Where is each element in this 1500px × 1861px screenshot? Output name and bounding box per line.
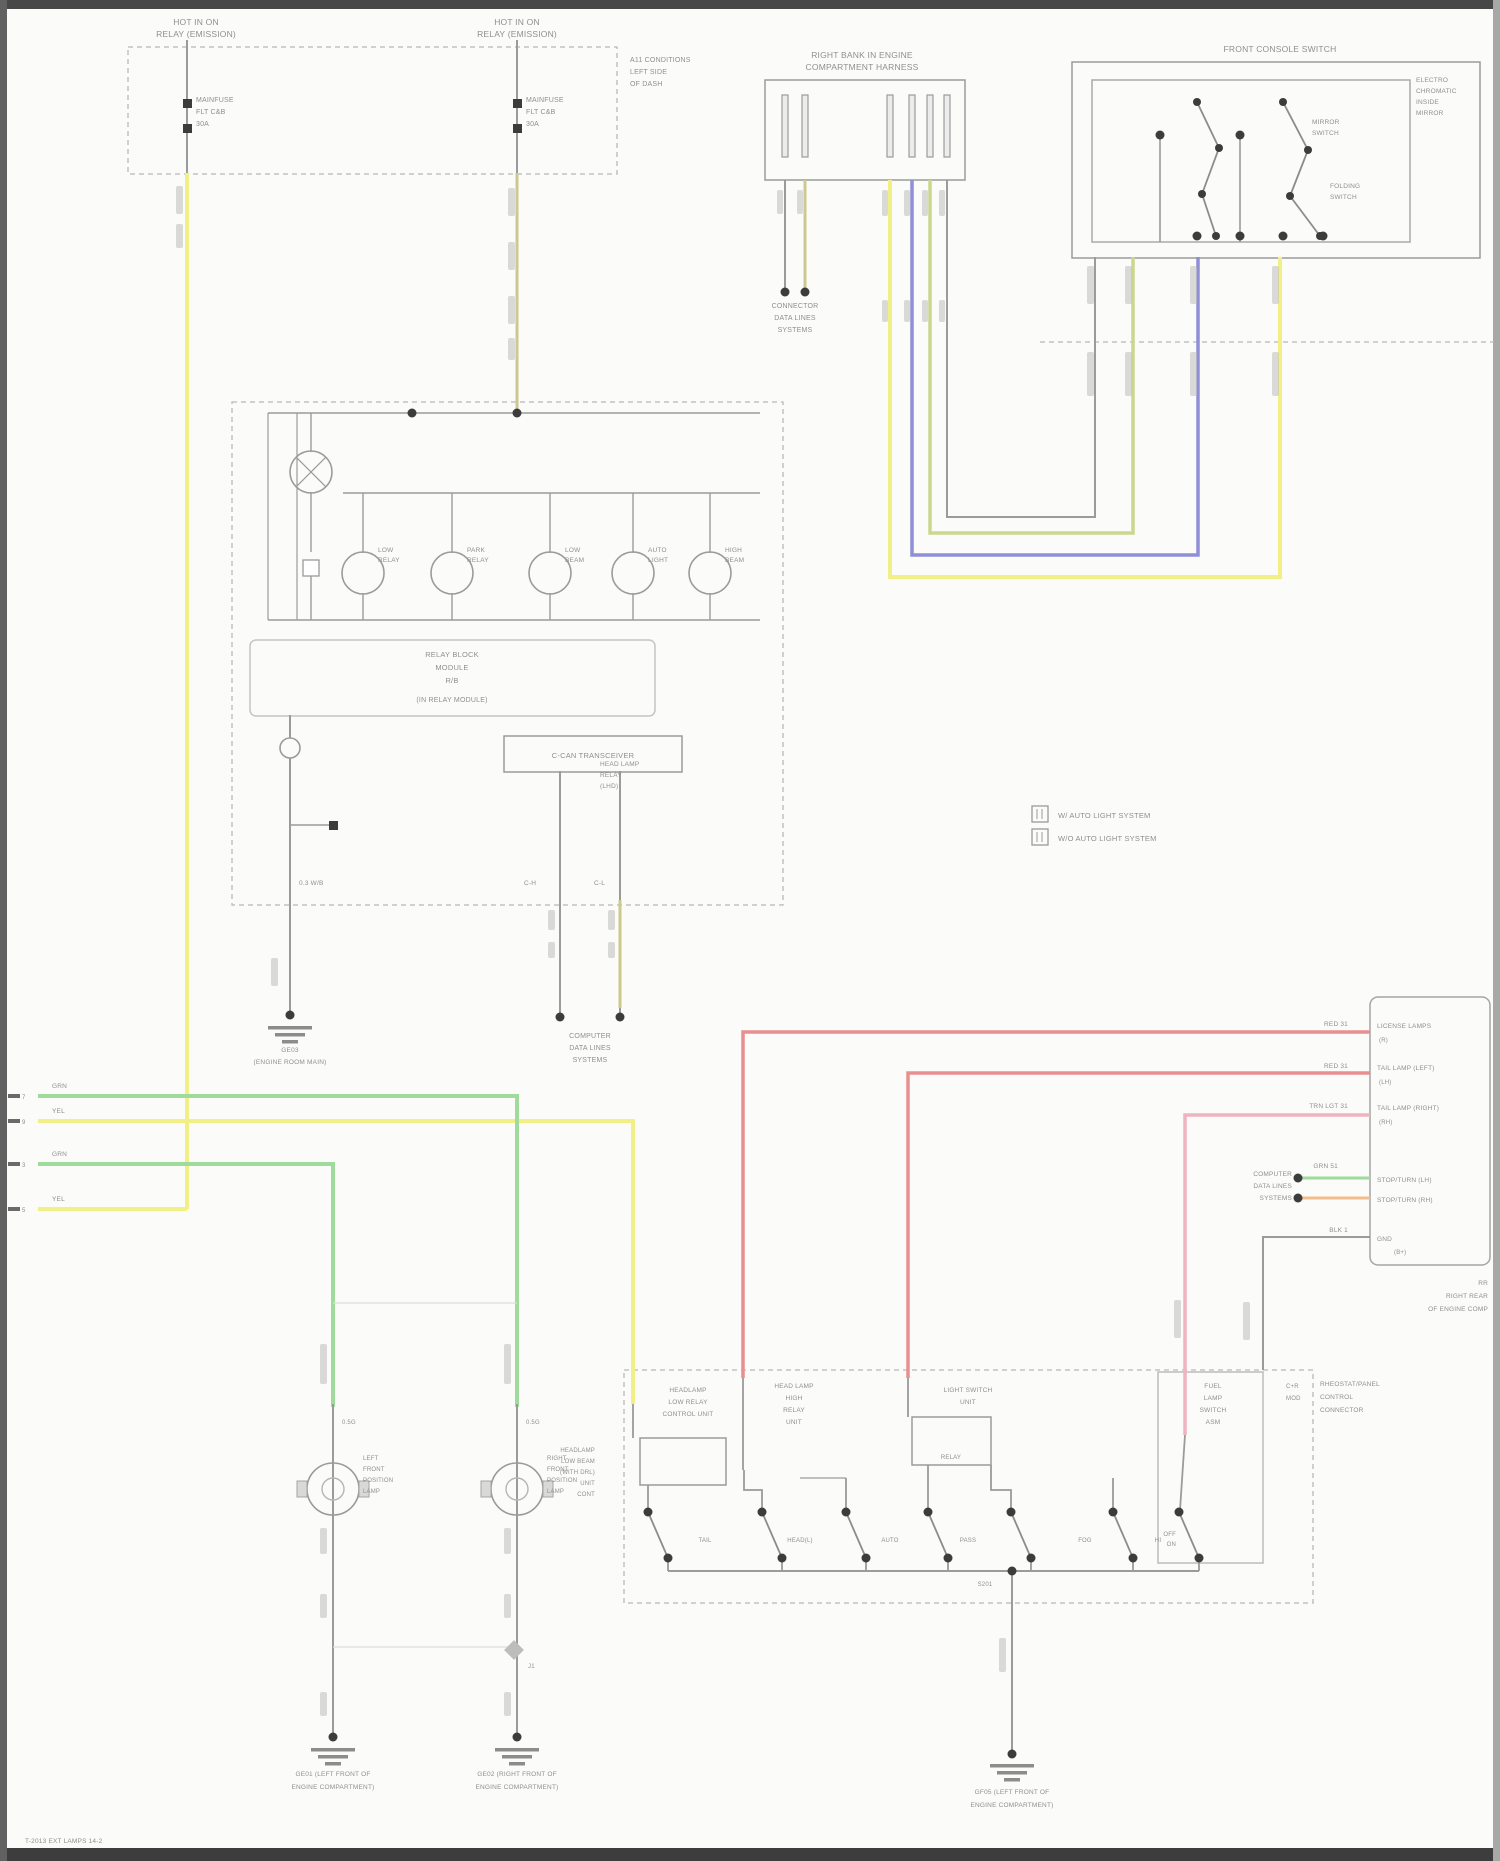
inline-connector bbox=[1125, 352, 1132, 396]
diagram-label: FUEL bbox=[1204, 1383, 1222, 1390]
switch-contact-dot bbox=[1198, 190, 1206, 198]
ground-symbol-bar bbox=[275, 1033, 305, 1037]
inline-connector bbox=[1087, 266, 1094, 304]
junction-dot bbox=[1236, 232, 1245, 241]
diagram-label: ELECTRO bbox=[1416, 77, 1448, 84]
diagram-label: HIGH bbox=[785, 1395, 802, 1402]
wire-green2 bbox=[930, 180, 1133, 533]
wire-red bbox=[743, 1032, 1370, 1378]
inline-connector bbox=[504, 1528, 511, 1554]
diagram-label: FRONT bbox=[363, 1467, 385, 1473]
switch-contact-dot bbox=[644, 1508, 653, 1517]
junction-dot bbox=[513, 1733, 522, 1742]
diagram-label: COMPUTER bbox=[569, 1033, 611, 1040]
lamp-tab bbox=[481, 1481, 491, 1497]
diagram-label: COMPARTMENT HARNESS bbox=[806, 62, 919, 72]
diagram-label: AUTO bbox=[648, 547, 667, 554]
diagram-label: RELAY bbox=[783, 1407, 805, 1414]
diagram-label: LOW RELAY bbox=[668, 1399, 708, 1406]
wire-gray bbox=[1180, 1435, 1185, 1510]
junction-dot bbox=[513, 409, 522, 418]
inline-connector bbox=[1190, 266, 1197, 304]
connector-pin bbox=[782, 95, 788, 157]
inline-connector bbox=[320, 1528, 327, 1554]
diagram-label: C-CAN TRANSCEIVER bbox=[552, 751, 635, 760]
diagram-label: (RH) bbox=[1379, 1120, 1392, 1126]
diagram-label: RR bbox=[1478, 1280, 1488, 1287]
switch-contact-dot bbox=[1109, 1508, 1118, 1517]
junction-dot bbox=[556, 1013, 565, 1022]
junction-dot bbox=[1236, 131, 1245, 140]
page-edge-bottom bbox=[0, 1848, 1500, 1861]
wire-gray bbox=[991, 1465, 1011, 1510]
junction-dot bbox=[1319, 232, 1328, 241]
diagram-label: OF ENGINE COMP bbox=[1428, 1306, 1488, 1313]
diagram-label: LAMP bbox=[1204, 1395, 1223, 1402]
wire-gray bbox=[744, 1470, 762, 1510]
diagram-label: HOT IN ON bbox=[173, 17, 219, 27]
inline-connector bbox=[999, 1638, 1006, 1672]
diagram-label: C-L bbox=[594, 880, 605, 887]
relay-module-block bbox=[232, 402, 783, 905]
diagram-label: COMPUTER bbox=[1253, 1171, 1292, 1178]
diagram-label: FOG bbox=[1078, 1538, 1092, 1544]
inline-connector bbox=[176, 186, 183, 214]
inline-connector bbox=[608, 942, 615, 958]
diagram-label: W/O AUTO LIGHT SYSTEM bbox=[1058, 834, 1157, 843]
diagram-label: RED 31 bbox=[1324, 1021, 1348, 1028]
diagram-label: YEL bbox=[52, 1196, 65, 1203]
diagram-label: GRN bbox=[52, 1151, 67, 1158]
splice-diamond bbox=[504, 1640, 524, 1660]
inline-connector bbox=[504, 1594, 511, 1618]
diagram-label: (IN RELAY MODULE) bbox=[416, 697, 487, 704]
inline-connector bbox=[882, 300, 888, 322]
legend-icon bbox=[1032, 806, 1048, 822]
diagram-label: (LH) bbox=[1379, 1080, 1391, 1086]
diagram-label: CONNECTOR bbox=[772, 303, 819, 310]
diagram-label: SYSTEMS bbox=[1260, 1195, 1293, 1202]
switch-contact-dot bbox=[924, 1508, 933, 1517]
diagram-label: BLK 1 bbox=[1329, 1227, 1348, 1234]
inline-connector bbox=[1087, 352, 1094, 396]
terminal-square bbox=[183, 124, 192, 133]
diagram-label: GE01 (LEFT FRONT OF bbox=[295, 1771, 370, 1778]
inline-connector bbox=[504, 1344, 511, 1384]
diagram-label: FRONT CONSOLE SWITCH bbox=[1224, 44, 1337, 54]
diagram-label: OF DASH bbox=[630, 81, 663, 88]
diagram-label: ENGINE COMPARTMENT) bbox=[970, 1802, 1053, 1809]
diagram-label: SWITCH bbox=[1312, 130, 1339, 137]
diagram-label: POSITION bbox=[547, 1478, 577, 1484]
diagram-label: PARK bbox=[467, 547, 485, 554]
inline-connector bbox=[504, 1692, 511, 1716]
switch-blade bbox=[1179, 1512, 1199, 1558]
connector-pin bbox=[887, 95, 893, 157]
switch-contact-dot bbox=[1215, 144, 1223, 152]
junction-dot bbox=[616, 1013, 625, 1022]
wire-red bbox=[908, 1073, 1370, 1378]
diagram-label: 30A bbox=[196, 121, 209, 128]
diagram-label: GF05 (LEFT FRONT OF bbox=[975, 1789, 1050, 1796]
diagram-label: SWITCH bbox=[1330, 194, 1357, 201]
inline-connector bbox=[320, 1692, 327, 1716]
ground-symbol-bar bbox=[325, 1762, 341, 1766]
terminal-square bbox=[183, 99, 192, 108]
page-edge-tick bbox=[8, 1094, 20, 1098]
diagram-label: LEFT SIDE bbox=[630, 69, 667, 76]
switch-contact-dot bbox=[1175, 1508, 1184, 1517]
inline-connector bbox=[939, 190, 945, 216]
ground-symbol-bar bbox=[311, 1748, 355, 1752]
switch-contact-dot bbox=[1286, 192, 1294, 200]
inline-connector bbox=[882, 190, 888, 216]
diagram-label: HEAD(L) bbox=[787, 1538, 812, 1544]
diagram-label: RIGHT bbox=[547, 1456, 567, 1462]
switch-contact-dot bbox=[944, 1554, 953, 1563]
diagram-label: RELAY bbox=[600, 772, 622, 779]
diagram-label: LEFT bbox=[363, 1456, 379, 1462]
diagram-label: UNIT bbox=[580, 1481, 595, 1487]
page-edge-tick bbox=[8, 1207, 20, 1211]
diagram-label: FOLDING bbox=[1330, 183, 1360, 190]
diagram-label: RELAY bbox=[378, 557, 400, 564]
inline-connector bbox=[508, 242, 515, 270]
switch-contact-dot bbox=[778, 1554, 787, 1563]
switch-contact-dot bbox=[664, 1554, 673, 1563]
diagram-label: LAMP bbox=[547, 1489, 564, 1495]
diagram-label: HI bbox=[1155, 1538, 1162, 1544]
diagram-label: LIGHT SWITCH bbox=[944, 1387, 993, 1394]
engine-harness-connector-box bbox=[765, 80, 965, 180]
connector-pin bbox=[927, 95, 933, 157]
diagram-label: 0.5G bbox=[342, 1420, 356, 1426]
diagram-label: GND bbox=[1377, 1236, 1392, 1243]
diagram-label: UNIT bbox=[786, 1419, 802, 1426]
diagram-label: C+R bbox=[1286, 1384, 1299, 1390]
switch-contact-dot bbox=[1007, 1508, 1016, 1517]
junction-dot bbox=[781, 288, 790, 297]
switch-blade bbox=[648, 1512, 668, 1558]
diagram-label: MIRROR bbox=[1416, 110, 1444, 117]
inline-connector bbox=[548, 942, 555, 958]
diagram-label: MIRROR bbox=[1312, 119, 1340, 126]
diagram-label: CONTROL UNIT bbox=[663, 1411, 714, 1418]
diagram-label: SYSTEMS bbox=[778, 327, 813, 334]
inline-connector bbox=[508, 188, 515, 216]
diagram-label: SYSTEMS bbox=[573, 1057, 608, 1064]
switch-contact-dot bbox=[1193, 98, 1201, 106]
diagram-label: HIGH bbox=[725, 547, 742, 554]
inline-connector bbox=[904, 300, 910, 322]
diagram-label: ON bbox=[1167, 1542, 1176, 1548]
switch-chain bbox=[1197, 102, 1219, 236]
junction-dot bbox=[1156, 131, 1165, 140]
switch-contact-dot bbox=[1027, 1554, 1036, 1563]
diagram-label: LOW bbox=[565, 547, 581, 554]
page-edge-tick bbox=[8, 1119, 20, 1123]
diagram-label: HEAD LAMP bbox=[600, 761, 639, 768]
wiring-diagram: HOT IN ONRELAY (EMISSION)HOT IN ONRELAY … bbox=[0, 0, 1500, 1861]
junction-dot bbox=[408, 409, 417, 418]
console-switch-inner-box bbox=[1092, 80, 1410, 242]
diagram-label: GRN bbox=[52, 1083, 67, 1090]
diagram-label: DATA LINES bbox=[569, 1045, 611, 1052]
inline-connector bbox=[939, 300, 945, 322]
diagram-label: STOP/TURN (RH) bbox=[1377, 1197, 1433, 1204]
diagram-label: 3 bbox=[22, 1163, 26, 1169]
diagram-label: ENGINE COMPARTMENT) bbox=[291, 1784, 374, 1791]
diagram-label: 0.3 W/B bbox=[299, 880, 324, 887]
diagram-label: YEL bbox=[52, 1108, 65, 1115]
junction-box bbox=[303, 560, 319, 576]
diagram-label: SWITCH bbox=[1200, 1407, 1227, 1414]
diagram-label: UNIT bbox=[960, 1399, 976, 1406]
diagram-label: BEAM bbox=[725, 557, 744, 564]
diagram-label: A11 CONDITIONS bbox=[630, 57, 691, 64]
diagram-label: 5 bbox=[22, 1208, 26, 1214]
switch-blade bbox=[1113, 1512, 1133, 1558]
terminal-square bbox=[513, 99, 522, 108]
legend-icon bbox=[1032, 829, 1048, 845]
page-edge-right bbox=[1493, 0, 1500, 1861]
page-edge-left bbox=[0, 0, 7, 1861]
ground-symbol-bar bbox=[1004, 1778, 1020, 1782]
diagram-label: DATA LINES bbox=[1253, 1183, 1292, 1190]
diagram-label: RIGHT REAR bbox=[1446, 1293, 1488, 1300]
connector-pin bbox=[944, 95, 950, 157]
diagram-label: RHEOSTAT/PANEL bbox=[1320, 1381, 1380, 1388]
inline-connector bbox=[271, 958, 278, 986]
switch-contact-dot bbox=[862, 1554, 871, 1563]
inline-connector bbox=[1190, 352, 1197, 396]
diagram-label: RED 31 bbox=[1324, 1063, 1348, 1070]
diagram-label: HOT IN ON bbox=[494, 17, 540, 27]
wiring-diagram-page: HOT IN ONRELAY (EMISSION)HOT IN ONRELAY … bbox=[0, 0, 1500, 1861]
inline-connector bbox=[1243, 1302, 1250, 1340]
diagram-label: S201 bbox=[978, 1582, 993, 1588]
diagram-label: MAINFUSE bbox=[526, 97, 564, 104]
switch-contact-dot bbox=[1212, 232, 1220, 240]
diagram-label: (B+) bbox=[1394, 1250, 1406, 1256]
diagram-label: (R) bbox=[1379, 1038, 1388, 1044]
diagram-label: (ENGINE ROOM MAIN) bbox=[254, 1059, 327, 1066]
diagram-label: 0.5G bbox=[526, 1420, 540, 1426]
inline-connector bbox=[1125, 266, 1132, 304]
diagram-label: ENGINE COMPARTMENT) bbox=[475, 1784, 558, 1791]
diagram-label: W/ AUTO LIGHT SYSTEM bbox=[1058, 811, 1151, 820]
diagram-label: TAIL bbox=[698, 1538, 711, 1544]
low-relay-inner-box bbox=[640, 1438, 726, 1485]
diagram-label: RELAY (EMISSION) bbox=[477, 29, 557, 39]
diagram-label: (LHD) bbox=[600, 783, 618, 790]
diagram-label: RELAY bbox=[467, 557, 489, 564]
inline-connector bbox=[1174, 1300, 1181, 1338]
diagram-label: GE02 (RIGHT FRONT OF bbox=[477, 1771, 557, 1778]
diagram-label: HEADLAMP bbox=[669, 1387, 706, 1394]
switch-contact-dot bbox=[1304, 146, 1312, 154]
diagram-label: HEADLAMP bbox=[560, 1448, 595, 1454]
inline-connector bbox=[320, 1344, 327, 1384]
switch-blade bbox=[928, 1512, 948, 1558]
diagram-label: 7 bbox=[22, 1095, 26, 1101]
diagram-label: OFF bbox=[1163, 1532, 1176, 1538]
diagram-label: PASS bbox=[960, 1538, 976, 1544]
diagram-label: TAIL LAMP (RIGHT) bbox=[1377, 1105, 1439, 1112]
switch-contact-dot bbox=[842, 1508, 851, 1517]
switch-contact-dot bbox=[1195, 1554, 1204, 1563]
inline-connector bbox=[508, 296, 515, 324]
diagram-label: R/B bbox=[445, 676, 458, 685]
diagram-label: AUTO bbox=[881, 1538, 898, 1544]
inline-connector bbox=[777, 190, 783, 214]
diagram-label: J1 bbox=[528, 1664, 535, 1670]
diagram-label: CONT bbox=[577, 1492, 595, 1498]
page-edge-tick bbox=[8, 1162, 20, 1166]
junction-dot bbox=[1008, 1750, 1017, 1759]
wire-gray bbox=[947, 180, 1095, 517]
switch-contact-dot bbox=[1279, 98, 1287, 106]
junction-dot bbox=[1294, 1174, 1303, 1183]
inline-connector bbox=[508, 338, 515, 360]
switch-contact-dot bbox=[758, 1508, 767, 1517]
ground-symbol-bar bbox=[990, 1764, 1034, 1768]
diagram-label: CONTROL bbox=[1320, 1394, 1353, 1401]
diagram-label: LICENSE LAMPS bbox=[1377, 1023, 1432, 1030]
diagram-label: DATA LINES bbox=[774, 315, 816, 322]
ring-terminal bbox=[280, 738, 300, 758]
diagram-label: LIGHT bbox=[648, 557, 668, 564]
wire-blue bbox=[912, 180, 1198, 555]
diagram-label: T-2013 EXT LAMPS 14-2 bbox=[25, 1838, 103, 1845]
diagram-label: CHROMATIC bbox=[1416, 88, 1457, 95]
inline-connector bbox=[922, 300, 928, 322]
switch-blade bbox=[1011, 1512, 1031, 1558]
ground-symbol-bar bbox=[495, 1748, 539, 1752]
wire-gray bbox=[1263, 1237, 1370, 1370]
diagram-label: 30A bbox=[526, 121, 539, 128]
diagram-label: MAINFUSE bbox=[196, 97, 234, 104]
diagram-label: FLT C&B bbox=[196, 109, 226, 116]
lamp-tab bbox=[297, 1481, 307, 1497]
junction-dot bbox=[1193, 232, 1202, 241]
diagram-label: STOP/TURN (LH) bbox=[1377, 1177, 1432, 1184]
diagram-label: GRN 51 bbox=[1313, 1163, 1338, 1170]
diagram-label: HEAD LAMP bbox=[774, 1383, 813, 1390]
diagram-label: GE03 bbox=[281, 1047, 299, 1054]
diagram-label: CONNECTOR bbox=[1320, 1407, 1364, 1414]
diagram-label: FRONT bbox=[547, 1467, 569, 1473]
diagram-label: RELAY (EMISSION) bbox=[156, 29, 236, 39]
diagram-label: TAIL LAMP (LEFT) bbox=[1377, 1065, 1435, 1072]
junction-dot bbox=[286, 1011, 295, 1020]
inline-connector bbox=[922, 190, 928, 216]
inline-connector bbox=[320, 1594, 327, 1618]
inline-connector bbox=[904, 190, 910, 216]
diagram-label: FLT C&B bbox=[526, 109, 556, 116]
terminal-square bbox=[513, 124, 522, 133]
diagram-label: POSITION bbox=[363, 1478, 393, 1484]
junction-dot bbox=[1008, 1567, 1017, 1576]
inline-connector bbox=[797, 190, 803, 214]
diagram-label: RIGHT BANK IN ENGINE bbox=[811, 50, 913, 60]
junction-dot bbox=[1294, 1194, 1303, 1203]
diagram-label: RELAY BLOCK bbox=[425, 650, 479, 659]
diagram-label: LAMP bbox=[363, 1489, 380, 1495]
ground-symbol-bar bbox=[268, 1026, 312, 1030]
inline-connector bbox=[608, 910, 615, 930]
diagram-label: RELAY bbox=[941, 1455, 961, 1461]
diagram-label: C-H bbox=[524, 880, 536, 887]
switch-blade bbox=[762, 1512, 782, 1558]
ground-symbol-bar bbox=[282, 1040, 298, 1044]
junction-dot bbox=[329, 1733, 338, 1742]
connector-pin bbox=[909, 95, 915, 157]
junction-dot bbox=[801, 288, 810, 297]
ground-symbol-bar bbox=[997, 1771, 1027, 1775]
diagram-label: MOD bbox=[1286, 1396, 1301, 1402]
rear-connector-box bbox=[1370, 997, 1490, 1265]
inline-connector bbox=[1272, 352, 1279, 396]
diagram-label: BEAM bbox=[565, 557, 584, 564]
connector-pin bbox=[802, 95, 808, 157]
wire-green bbox=[38, 1096, 517, 1407]
diagram-label: ASM bbox=[1206, 1419, 1221, 1426]
ground-symbol-bar bbox=[318, 1755, 348, 1759]
diagram-label: MODULE bbox=[435, 663, 468, 672]
inline-connector bbox=[176, 224, 183, 248]
diagram-label: TRN LGT 31 bbox=[1309, 1103, 1348, 1110]
ground-symbol-bar bbox=[509, 1762, 525, 1766]
page-edge-top bbox=[0, 0, 1500, 9]
switch-blade bbox=[846, 1512, 866, 1558]
terminal-square bbox=[329, 821, 338, 830]
diagram-label: 9 bbox=[22, 1120, 26, 1126]
ground-symbol-bar bbox=[502, 1755, 532, 1759]
diagram-label: INSIDE bbox=[1416, 99, 1439, 106]
switch-contact-dot bbox=[1129, 1554, 1138, 1563]
diagram-label: LOW bbox=[378, 547, 394, 554]
inline-connector bbox=[548, 910, 555, 930]
junction-dot bbox=[1279, 232, 1288, 241]
inline-connector bbox=[1272, 266, 1279, 304]
